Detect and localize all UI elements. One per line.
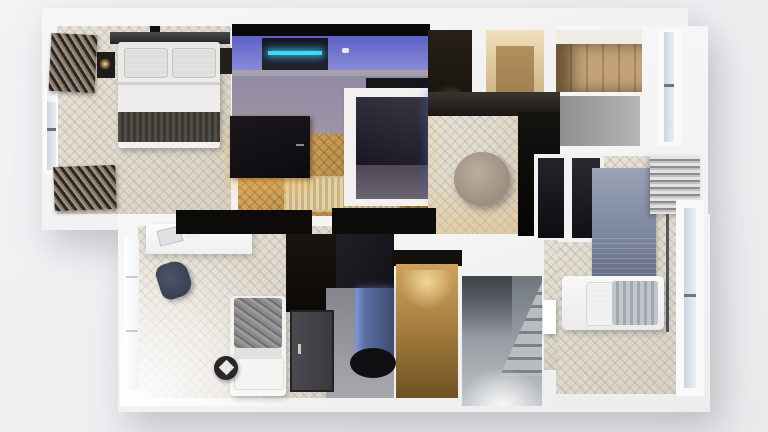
living-sideboard — [230, 116, 310, 178]
bedroom-tl-pillow-left — [124, 48, 168, 78]
stairs-upper-shadow — [462, 276, 512, 336]
bedroom-r-window-glass — [684, 208, 696, 388]
floor-plan — [0, 0, 768, 432]
bedroom-tl-nightstand-right — [220, 48, 232, 74]
bedroom-tl-window-mullion — [47, 128, 56, 131]
bedroom-tl-curtain-top — [49, 33, 98, 93]
window-top-right-mullion — [664, 84, 674, 87]
bathroom-dark-upper — [336, 234, 394, 290]
bathroom-tub-oval — [350, 348, 396, 378]
bedroom-r-curtain-rod — [666, 214, 669, 332]
bedroom-tl-pillow-right — [172, 48, 216, 78]
bedroom-r-blanket-gray — [612, 281, 658, 325]
bedroom-bl-window-tick-1 — [126, 276, 138, 278]
hallway-pouf — [454, 152, 510, 206]
warm-corridor-lamp-glow — [400, 270, 454, 310]
media-room-back-wall — [232, 24, 430, 36]
bedroom-bl-window-left — [124, 238, 139, 390]
core-interior — [356, 97, 430, 165]
bedroom-tl-throw-blanket — [118, 112, 220, 142]
stair-hall-dresser — [543, 300, 556, 334]
bedroom-tl-duvet-fold — [118, 82, 220, 85]
stairs-landing-glow — [462, 370, 542, 406]
bedroom-bl-wardrobe-band — [176, 210, 312, 234]
bedroom-bl-blanket-patterned — [234, 298, 282, 348]
bedroom-tl-lamp-glow — [99, 58, 111, 70]
media-room-led-strip — [268, 51, 322, 55]
render-canvas — [0, 0, 768, 432]
core-lower-floor — [356, 165, 430, 199]
bedroom-bl-pillows — [234, 358, 284, 390]
bathroom-door-handle — [298, 344, 301, 354]
window-top-right-glass — [664, 32, 674, 142]
living-sideboard-handle — [296, 144, 304, 146]
media-room-mouse — [342, 48, 349, 53]
closet-wardrobes — [556, 44, 642, 92]
stair-void-gray-room — [556, 96, 640, 146]
closet-ceiling-band — [556, 30, 642, 44]
wall-band-dark-center — [332, 208, 436, 234]
bedroom-tl-curtain-bottom — [53, 165, 116, 211]
bedroom-r-window-mullion — [684, 294, 696, 297]
bathroom-door — [290, 310, 334, 392]
bedroom-r-wardrobe-panel-1 — [538, 158, 564, 238]
bedroom-tl-ceiling-spot — [150, 26, 160, 32]
bedroom-r-pillow — [586, 282, 614, 326]
bedroom-bl-window-tick-2 — [126, 330, 138, 332]
bedroom-bl-sheet-fold — [234, 348, 282, 358]
